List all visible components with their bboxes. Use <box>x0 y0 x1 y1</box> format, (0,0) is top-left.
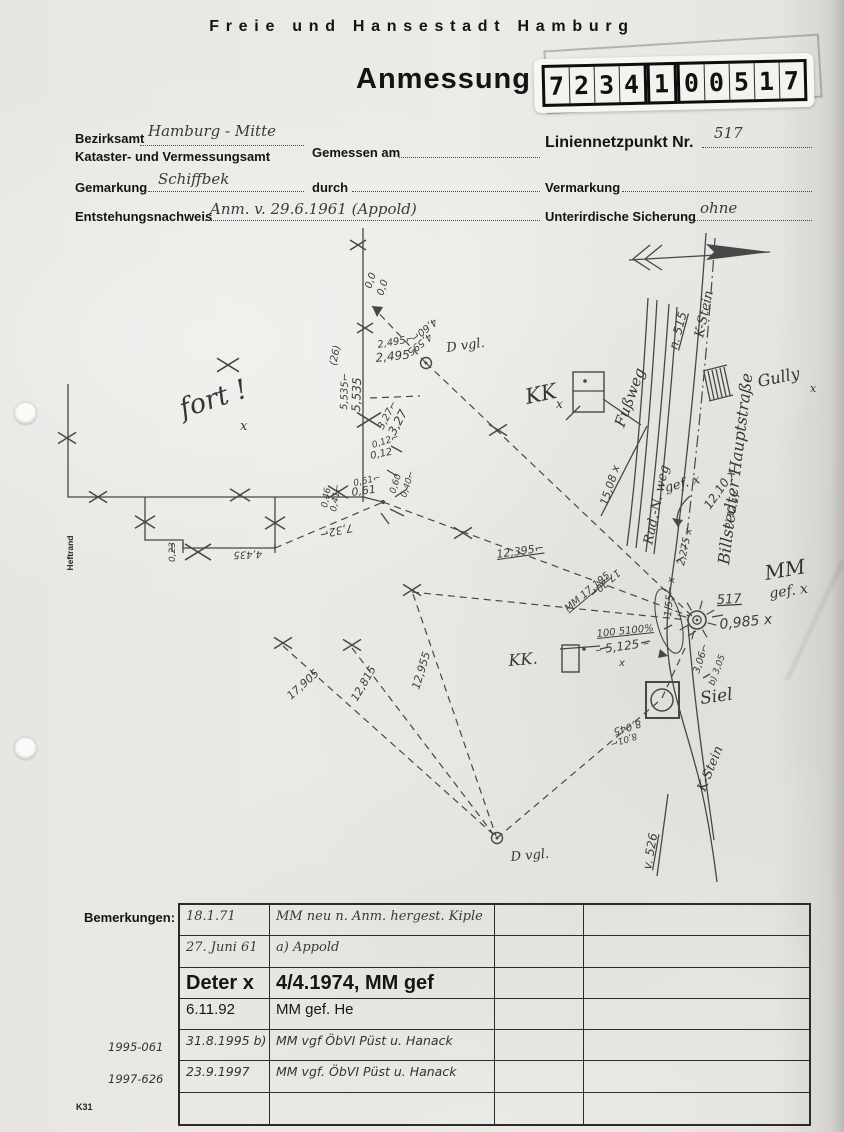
remark-empty-cell <box>495 1093 584 1124</box>
remark-empty-cell <box>584 999 809 1030</box>
remark-text-cell: 4/4.1974, MM gef <box>270 968 495 999</box>
pencil-line <box>645 245 662 270</box>
sketch-label: 0,985 x <box>719 611 774 633</box>
sketch-label: 2,495 <box>375 347 411 365</box>
survey-cross-mark <box>357 323 373 333</box>
sketch-label: x <box>240 419 248 434</box>
sketch-label: 7,32⌐ <box>318 521 354 541</box>
highlight-arrowhead <box>658 649 668 658</box>
gef-arrowhead <box>672 518 683 527</box>
remark-entry: MM vgf. ÖbVI Püst u. Hanack <box>276 1064 456 1079</box>
sketch-label: (26) <box>328 344 343 366</box>
remark-margin-note: 1997-626 <box>108 1072 163 1086</box>
remark-entry: MM neu n. Anm. hergest. Kiple <box>276 909 483 924</box>
sketch-label: 15,08 x <box>597 463 622 507</box>
sketch-label: b) 3,05 <box>707 653 727 687</box>
sketch-label: 517 <box>716 592 742 608</box>
pencil-line <box>145 497 275 548</box>
sketch-label: K-Stein <box>692 289 717 340</box>
sketch-label: 0,23 <box>168 542 178 562</box>
kk-box-bottom-dot <box>582 647 586 651</box>
sketch-label: 0,40⌐ <box>399 470 417 499</box>
remarks-table: 18.1.71MM neu n. Anm. hergest. Kiple27. … <box>178 903 811 1126</box>
remark-margin-note: 1995-061 <box>108 1040 163 1054</box>
sketch-label: KK. <box>507 649 539 671</box>
remark-empty-cell <box>495 905 584 936</box>
sketch-label: 0,61 <box>351 483 377 499</box>
remark-text-cell: MM vgf ÖbVI Püst u. Hanack <box>270 1030 495 1061</box>
point-517-ray <box>707 610 715 615</box>
remark-entry: 18.1.71 <box>186 909 236 924</box>
point-517-ray <box>687 603 692 611</box>
pencil-dashed-line <box>412 592 688 620</box>
remark-empty-cell <box>584 1030 809 1061</box>
pencil-line <box>676 233 706 548</box>
sketch-label: Billstedter Hauptstraße <box>714 372 756 566</box>
sketch-label: fort ! <box>174 374 252 426</box>
sketch-label: Rad.-N. weg <box>641 464 673 547</box>
sketch-label: x <box>618 658 625 669</box>
remark-entry: 4/4.1974, MM gef <box>276 972 434 994</box>
sketch-label: Gully <box>756 363 802 391</box>
aux-point-top-dot <box>425 362 428 365</box>
remark-date-cell: 31.8.1995 b) <box>180 1030 270 1061</box>
remark-empty-cell <box>584 1093 809 1124</box>
sketch-label: x <box>810 382 817 395</box>
pencil-dashed-line <box>383 502 689 616</box>
sketch-label: gef. x <box>768 581 809 602</box>
remark-empty-cell <box>495 968 584 999</box>
heftrand-label: Heftrand <box>65 523 75 583</box>
remark-empty-cell <box>495 999 584 1030</box>
remark-empty-cell <box>584 968 809 999</box>
sketch-label: 3,06⌐ <box>691 642 711 675</box>
point-517-ray <box>708 623 717 625</box>
remark-text-cell: a) Appold <box>270 936 495 967</box>
remark-text-cell <box>270 1093 495 1124</box>
remark-entry: Deter x <box>186 972 254 994</box>
survey-sketch-labels: 0,00,0(26)2,495⌐2,4954,60⌐4,595D vgl.5,5… <box>168 271 817 870</box>
pencil-line <box>664 625 672 629</box>
pencil-line <box>381 513 389 524</box>
survey-cross-mark <box>403 584 421 595</box>
sketch-label: KK <box>522 379 560 409</box>
sketch-label: 17,905 <box>284 667 321 702</box>
bemerkungen-label: Bemerkungen: <box>84 910 175 925</box>
sketch-label: x <box>556 397 563 411</box>
remark-empty-cell <box>495 1061 584 1092</box>
sketch-label: 2,275 x <box>676 527 695 566</box>
point-517-ray <box>680 626 688 631</box>
building-corner-point <box>381 500 385 504</box>
aux-point-bottom-dot <box>496 837 499 840</box>
remark-date-cell: 6.11.92 <box>180 999 270 1030</box>
point-517-ray <box>703 630 708 638</box>
sketch-label: 0,0 <box>375 278 390 297</box>
survey-cross-mark <box>489 424 507 435</box>
remark-date-cell <box>180 1093 270 1124</box>
punch-hole-bottom <box>14 737 37 760</box>
remark-text-cell: MM neu n. Anm. hergest. Kiple <box>270 905 495 936</box>
survey-cross-mark <box>454 527 472 538</box>
sketch-label: 5,535 <box>349 377 364 412</box>
point-517-ray <box>700 601 702 610</box>
sketch-label: Fußweg <box>611 366 649 431</box>
sketch-label: 12,815 <box>348 664 379 704</box>
sketch-label: MM <box>762 554 808 585</box>
point-517-ray <box>692 631 694 640</box>
sketch-label: 4,435 <box>233 548 262 560</box>
remark-text-cell: MM gef. He <box>270 999 495 1030</box>
form-code-label: K31 <box>76 1102 93 1112</box>
remark-date-cell: 23.9.1997 <box>180 1061 270 1092</box>
remark-entry: 31.8.1995 b) <box>186 1033 266 1048</box>
survey-cross-mark <box>274 637 292 648</box>
pencil-dashed-line <box>275 503 381 548</box>
remark-date-cell: Deter x <box>180 968 270 999</box>
pencil-line <box>363 497 383 502</box>
survey-sketch-geometry <box>58 228 770 882</box>
pencil-line <box>703 365 727 371</box>
pencil-line <box>390 509 404 516</box>
point-517-symbol <box>696 619 699 622</box>
pencil-dashed-line <box>370 396 420 398</box>
sketch-label: v. 526 <box>640 832 660 871</box>
remark-date-cell: 27. Juni 61 <box>180 936 270 967</box>
survey-cross-mark <box>230 489 250 501</box>
remark-entry: MM vgf ÖbVI Püst u. Hanack <box>276 1033 453 1048</box>
siel-manhole-symbol <box>651 689 673 711</box>
survey-cross-mark <box>217 358 239 372</box>
remark-empty-cell <box>495 936 584 967</box>
remark-entry: 27. Juni 61 <box>186 940 258 955</box>
pencil-line <box>709 395 733 401</box>
sketch-label: n. 515 <box>666 310 689 350</box>
north-arrow-tip <box>706 244 770 260</box>
point-517-ray <box>678 615 687 617</box>
survey-cross-mark <box>58 432 76 443</box>
scanned-survey-form: Freie und Hansestadt Hamburg Anmessung 7… <box>0 0 844 1132</box>
remark-empty-cell <box>584 1061 809 1092</box>
sketch-label: 12,395⌐ <box>496 541 545 561</box>
pencil-line <box>391 446 402 452</box>
remark-empty-cell <box>584 905 809 936</box>
kk-box-top <box>573 372 604 412</box>
sketch-label: D vgl. <box>444 336 485 356</box>
remark-empty-cell <box>495 1030 584 1061</box>
sketch-label: K-Stein <box>694 744 726 795</box>
remark-text-cell: MM vgf. ÖbVI Püst u. Hanack <box>270 1061 495 1092</box>
remark-date-cell: 18.1.71 <box>180 905 270 936</box>
remark-entry: 23.9.1997 <box>186 1064 250 1079</box>
remark-entry: a) Appold <box>276 940 339 955</box>
punch-hole-top <box>14 402 37 425</box>
remark-entry: MM gef. He <box>276 1001 354 1018</box>
sketch-label: 12,955 <box>409 650 433 691</box>
kk-box-top-dot <box>583 379 587 383</box>
remark-entry: 6.11.92 <box>186 1001 235 1018</box>
sketch-label: Siel <box>699 685 734 709</box>
sketch-label: MM 17,195 <box>563 570 613 614</box>
remark-empty-cell <box>584 936 809 967</box>
sketch-label: D vgl. <box>509 847 550 865</box>
survey-cross-mark <box>185 544 211 560</box>
